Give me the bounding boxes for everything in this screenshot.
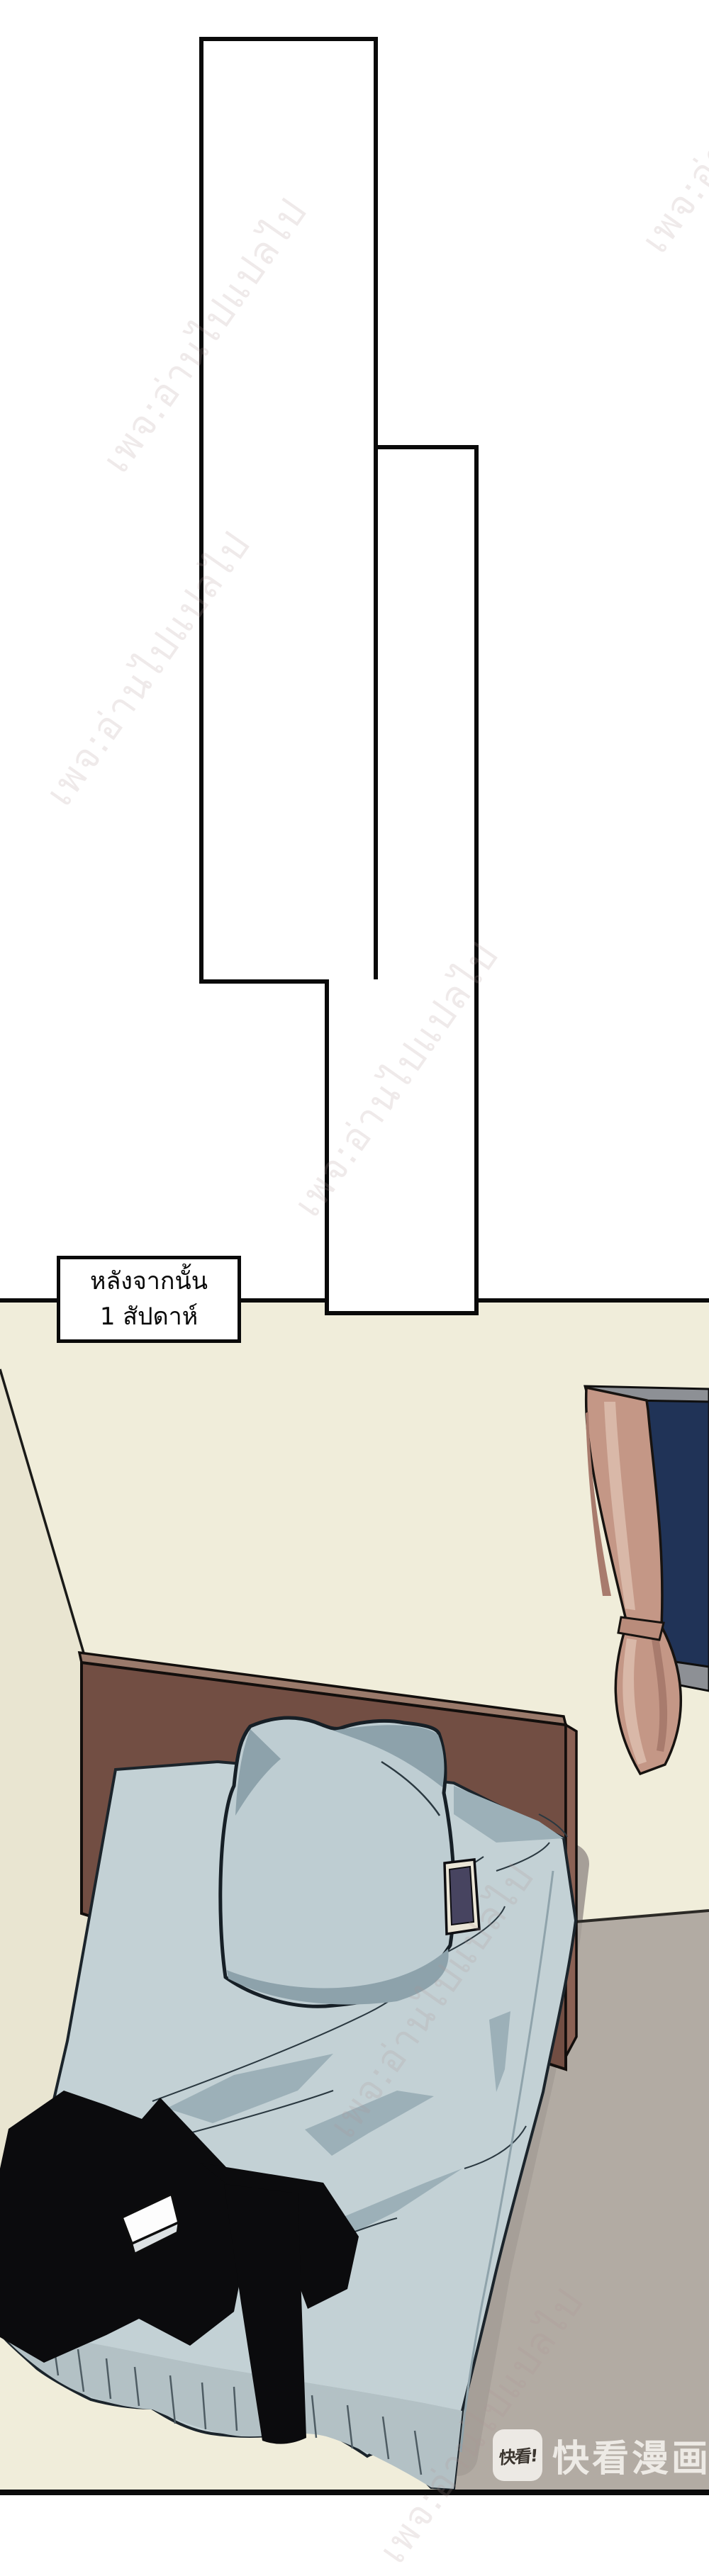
comic-page: หลังจากนั้น 1 สัปดาห์ 快看! 快看漫画 เพจ:อ่านไ… — [0, 0, 709, 2532]
caption-line-2: 1 สัปดาห์ — [100, 1304, 198, 1330]
kuaikan-logo-icon: 快看! — [493, 2429, 542, 2481]
kuaikan-icon-text: 快看! — [498, 2441, 537, 2469]
empty-panel-2 — [374, 445, 479, 979]
empty-panel-3 — [325, 979, 479, 1315]
phone-screen — [450, 1867, 474, 1925]
publisher-logo: 快看! 快看漫画 — [493, 2429, 709, 2482]
caption-line-1: หลังจากนั้น — [90, 1269, 208, 1295]
scene-bottom-border — [0, 2490, 709, 2495]
caption-box: หลังจากนั้น 1 สัปดาห์ — [57, 1256, 241, 1343]
empty-panel-1 — [199, 37, 378, 984]
kuaikan-logo-text: 快看漫画 — [552, 2429, 709, 2482]
phone — [445, 1860, 479, 1934]
